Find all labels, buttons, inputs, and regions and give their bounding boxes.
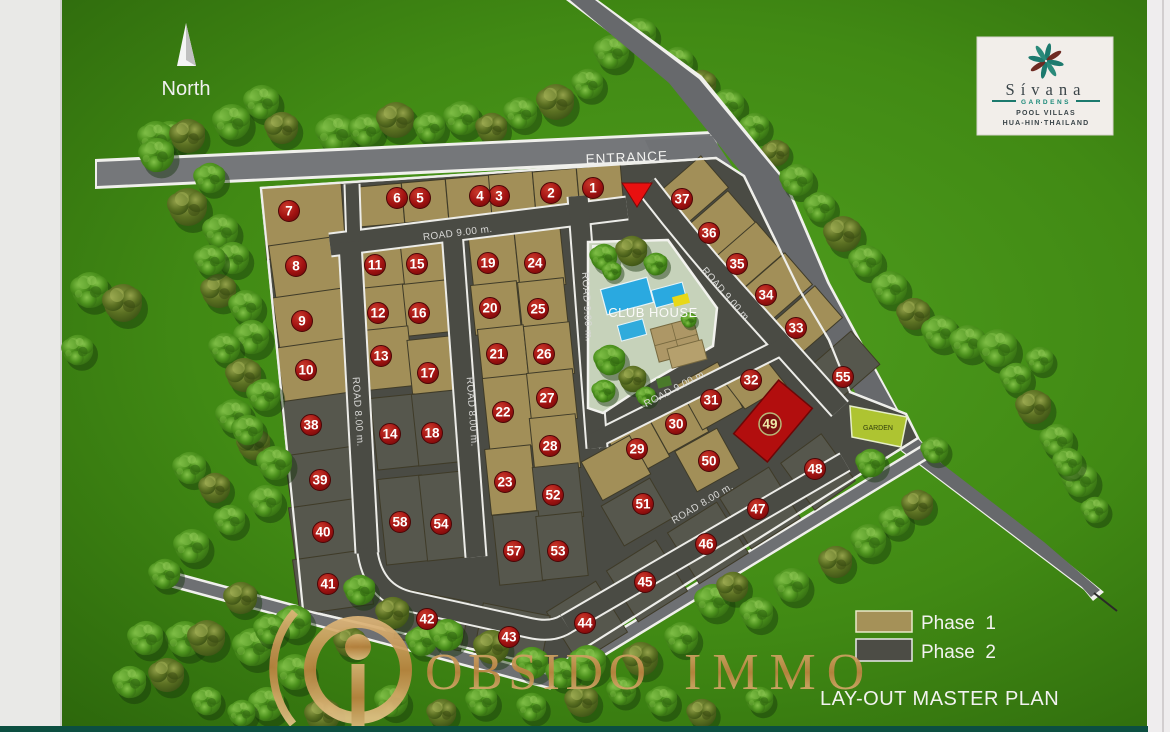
svg-text:22: 22 bbox=[495, 405, 510, 420]
svg-text:CLUB HOUSE: CLUB HOUSE bbox=[608, 305, 698, 320]
svg-text:40: 40 bbox=[315, 525, 330, 540]
svg-text:37: 37 bbox=[674, 192, 689, 207]
svg-text:41: 41 bbox=[320, 577, 336, 592]
svg-text:25: 25 bbox=[530, 302, 546, 317]
svg-text:50: 50 bbox=[701, 454, 716, 469]
svg-text:11: 11 bbox=[368, 258, 383, 273]
svg-text:31: 31 bbox=[703, 393, 719, 408]
svg-text:42: 42 bbox=[419, 612, 434, 627]
svg-text:54: 54 bbox=[433, 517, 449, 532]
svg-text:10: 10 bbox=[298, 363, 313, 378]
svg-text:30: 30 bbox=[668, 417, 683, 432]
svg-text:52: 52 bbox=[545, 488, 560, 503]
svg-text:6: 6 bbox=[393, 191, 401, 206]
svg-text:49: 49 bbox=[762, 417, 777, 432]
svg-text:Sívana: Sívana bbox=[1006, 80, 1087, 99]
svg-text:OBSIDO: OBSIDO bbox=[425, 644, 652, 701]
svg-text:Phase 1: Phase 1 bbox=[921, 613, 996, 634]
svg-text:44: 44 bbox=[577, 616, 593, 631]
svg-text:1: 1 bbox=[589, 181, 597, 196]
svg-text:POOL VILLAS: POOL VILLAS bbox=[1016, 110, 1076, 117]
svg-text:18: 18 bbox=[424, 426, 440, 441]
svg-text:33: 33 bbox=[788, 321, 804, 336]
svg-text:55: 55 bbox=[835, 370, 851, 385]
svg-text:19: 19 bbox=[480, 256, 495, 271]
svg-text:47: 47 bbox=[750, 502, 765, 517]
svg-text:23: 23 bbox=[497, 475, 513, 490]
svg-text:32: 32 bbox=[743, 373, 758, 388]
svg-text:48: 48 bbox=[807, 462, 823, 477]
svg-text:15: 15 bbox=[409, 257, 425, 272]
svg-text:12: 12 bbox=[370, 306, 385, 321]
svg-text:9: 9 bbox=[298, 314, 306, 329]
svg-text:46: 46 bbox=[698, 537, 714, 552]
svg-text:21: 21 bbox=[489, 347, 505, 362]
svg-text:26: 26 bbox=[536, 347, 552, 362]
svg-text:35: 35 bbox=[729, 257, 745, 272]
svg-text:43: 43 bbox=[501, 630, 517, 645]
svg-text:28: 28 bbox=[542, 439, 558, 454]
svg-text:7: 7 bbox=[285, 204, 293, 219]
svg-text:29: 29 bbox=[629, 442, 644, 457]
svg-text:51: 51 bbox=[635, 497, 651, 512]
svg-text:Phase 2: Phase 2 bbox=[921, 642, 996, 663]
svg-text:24: 24 bbox=[527, 256, 543, 271]
svg-text:34: 34 bbox=[758, 288, 774, 303]
svg-text:58: 58 bbox=[392, 515, 408, 530]
svg-text:16: 16 bbox=[411, 306, 427, 321]
svg-text:36: 36 bbox=[701, 226, 717, 241]
svg-text:4: 4 bbox=[476, 189, 484, 204]
svg-text:HUA-HIN·THAILAND: HUA-HIN·THAILAND bbox=[1003, 120, 1090, 127]
svg-text:GARDEN: GARDEN bbox=[863, 425, 893, 432]
svg-text:3: 3 bbox=[495, 189, 503, 204]
svg-text:14: 14 bbox=[382, 427, 398, 442]
svg-text:57: 57 bbox=[506, 544, 521, 559]
svg-text:53: 53 bbox=[550, 544, 566, 559]
svg-text:13: 13 bbox=[373, 349, 389, 364]
svg-text:20: 20 bbox=[482, 301, 497, 316]
svg-text:2: 2 bbox=[547, 186, 555, 201]
svg-text:8: 8 bbox=[292, 259, 300, 274]
svg-text:39: 39 bbox=[312, 473, 327, 488]
svg-text:North: North bbox=[162, 78, 211, 100]
svg-text:17: 17 bbox=[420, 366, 435, 381]
svg-text:5: 5 bbox=[416, 191, 424, 206]
svg-text:27: 27 bbox=[539, 391, 554, 406]
svg-text:IMMO: IMMO bbox=[684, 644, 875, 701]
svg-text:38: 38 bbox=[303, 418, 319, 433]
svg-text:GARDENS: GARDENS bbox=[1021, 99, 1071, 106]
svg-text:45: 45 bbox=[637, 575, 653, 590]
